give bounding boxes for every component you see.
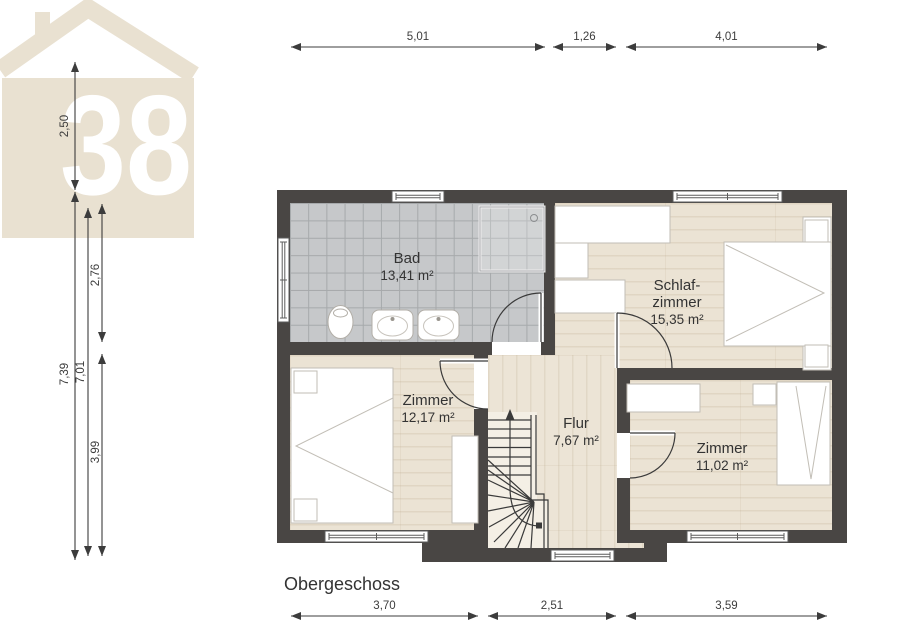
dim-left-4: 2,76 xyxy=(90,264,102,286)
room-name-2: zimmer xyxy=(650,294,703,311)
shower xyxy=(480,207,544,271)
dim-bottom-1: 3,70 xyxy=(373,600,395,612)
dim-top-2: 1,26 xyxy=(573,31,595,43)
plan-title: Obergeschoss xyxy=(284,574,400,595)
room-name: Flur xyxy=(553,415,599,432)
plan-drawing: 38 xyxy=(0,0,900,637)
dim-left-2: 7,39 xyxy=(59,363,71,385)
door-bad xyxy=(492,293,541,342)
room-name: Bad xyxy=(380,250,433,267)
wardrobe-schlafzimmer xyxy=(555,206,670,243)
window-schlafzimmer-top xyxy=(673,191,782,202)
window-zimmer-rechts-bottom xyxy=(687,531,788,542)
room-area: 15,35 m² xyxy=(650,311,703,328)
room-name: Zimmer xyxy=(696,440,748,457)
dim-bottom-3: 3,59 xyxy=(715,600,737,612)
sink-1 xyxy=(372,310,413,340)
dim-bottom-2: 2,51 xyxy=(541,600,563,612)
room-area: 11,02 m² xyxy=(696,457,748,474)
floor-plan-canvas: 38 xyxy=(0,0,900,637)
logo-house-38: 38 xyxy=(0,8,194,238)
dim-left-3: 7,01 xyxy=(75,361,87,383)
staircase xyxy=(488,409,548,548)
window-bad-top xyxy=(392,191,444,202)
bath-fixtures xyxy=(328,207,544,340)
room-name: Schlaf- xyxy=(650,277,703,294)
room-name: Zimmer xyxy=(401,392,454,409)
dim-left-5: 3,99 xyxy=(90,441,102,463)
furniture-layer xyxy=(291,206,831,523)
bed-schlafzimmer xyxy=(724,217,831,370)
dim-top-3: 4,01 xyxy=(715,31,737,43)
toilet xyxy=(328,306,353,339)
window-bad-left xyxy=(278,238,289,322)
room-label-zimmer-links: Zimmer 12,17 m² xyxy=(401,392,454,426)
room-area: 13,41 m² xyxy=(380,267,433,284)
door-zimmer-rechts xyxy=(630,433,675,478)
room-label-flur: Flur 7,67 m² xyxy=(553,415,599,449)
logo-number: 38 xyxy=(60,66,192,225)
window-zimmer-links-bottom xyxy=(325,531,428,542)
room-label-schlafzimmer: Schlaf- zimmer 15,35 m² xyxy=(650,277,703,328)
room-area: 12,17 m² xyxy=(401,409,454,426)
desk-zimmer-rechts xyxy=(627,384,700,412)
bed-zimmer-rechts xyxy=(753,382,830,485)
window-flur-bottom xyxy=(551,550,614,561)
room-label-zimmer-rechts: Zimmer 11,02 m² xyxy=(696,440,748,474)
room-label-bad: Bad 13,41 m² xyxy=(380,250,433,284)
dim-left-1: 2,50 xyxy=(59,115,71,137)
room-area: 7,67 m² xyxy=(553,432,599,449)
sink-2 xyxy=(418,310,459,340)
bed-zimmer-links xyxy=(291,368,393,523)
wardrobe-zimmer-links xyxy=(452,436,478,523)
dim-top-1: 5,01 xyxy=(407,31,429,43)
